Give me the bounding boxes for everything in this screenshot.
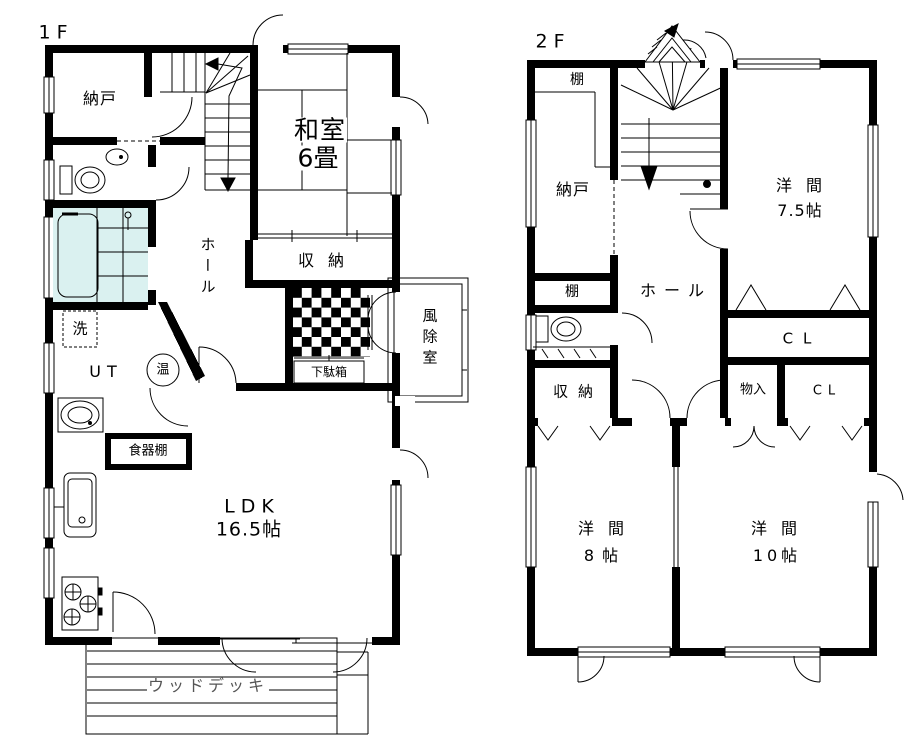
floorplan-canvas: 1F 納戸 和室 6畳 収納 ホール 風除室 下駄箱 洗 UT 温 食器棚 LD… — [0, 0, 914, 751]
room-label-yoma75: 洋間 — [776, 178, 836, 194]
bathroom-1f — [53, 208, 148, 302]
floorplan-drawing — [0, 0, 914, 751]
room-label-windbreak: 風除室 — [422, 308, 437, 371]
room-label-yoma75-size: 7.5帖 — [777, 203, 822, 219]
room-label-shokkidana: 食器棚 — [128, 445, 167, 458]
basin-icon — [58, 398, 103, 432]
floor2-label: 2F — [535, 33, 570, 52]
entrance-checker — [292, 288, 370, 357]
floor1-door-arcs — [106, 15, 428, 634]
room-label-yoma8-size: 8帖 — [584, 548, 626, 564]
room-label-washitsu: 和室 — [293, 118, 347, 143]
room-label-sen: 洗 — [72, 322, 87, 337]
stair-bay — [645, 24, 706, 62]
room-label-cl-lower: CL — [813, 385, 841, 398]
room-label-hall-1f: ホール — [200, 237, 215, 300]
floor1-label: 1F — [38, 24, 73, 43]
room-label-shuno-2f: 収納 — [553, 385, 603, 400]
room-label-shuno-1f: 収納 — [297, 253, 359, 269]
room-label-yoma10: 洋間 — [751, 521, 811, 537]
room-label-wood-deck: ウッドデッキ — [147, 678, 269, 694]
toilet-1f-icon — [60, 149, 128, 194]
room-label-ldk-size: 16.5帖 — [216, 521, 282, 540]
floor2-details — [533, 24, 903, 682]
room-label-yoma10-size: 10帖 — [753, 548, 801, 564]
room-label-hall-2f: ホール — [640, 283, 712, 299]
room-label-tana-top: 棚 — [570, 73, 584, 87]
front-door — [368, 292, 396, 353]
room-label-nando-2f: 納戸 — [555, 182, 591, 198]
toilet-2f-icon — [533, 316, 610, 358]
room-label-ldk: LDK — [224, 498, 280, 517]
room-label-washitsu-size: 6畳 — [297, 146, 340, 171]
room-label-monoire: 物入 — [740, 384, 766, 397]
stove-icon — [62, 577, 102, 630]
room-label-ut: UT — [89, 364, 122, 380]
stairs-1f — [160, 53, 250, 191]
room-label-on: 温 — [156, 364, 169, 377]
room-label-tana-mid: 棚 — [565, 285, 579, 299]
floor2-plan — [526, 24, 903, 682]
room-label-getabako: 下駄箱 — [311, 366, 347, 378]
stairs-2f — [621, 24, 727, 194]
room-label-nando-1f: 納戸 — [82, 91, 118, 107]
room-label-cl-upper: CL — [783, 332, 822, 347]
kitchen-sink-icon — [54, 473, 96, 537]
room-label-yoma8: 洋間 — [578, 521, 638, 537]
